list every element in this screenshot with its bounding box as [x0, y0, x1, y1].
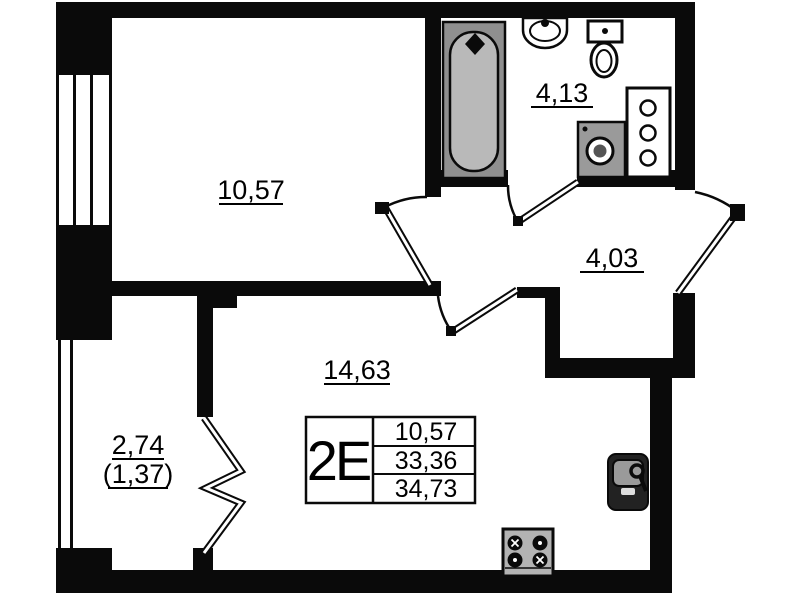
wall-left-upper: [56, 2, 112, 73]
info-floor-area: 33,36: [395, 447, 458, 475]
living-area-label: 14,63: [323, 355, 391, 385]
door-leaf-cap: [730, 204, 745, 221]
wall-top: [56, 2, 695, 18]
bedroom-window: [56, 73, 112, 227]
floor-plan-drawing: 2E 10,57 33,36 34,73 10,57 4,13 4,03 14,…: [0, 0, 799, 600]
wall-bottom: [56, 570, 672, 593]
toilet: [588, 21, 622, 77]
bathtub: [443, 22, 505, 178]
floor-plan: 2E 10,57 33,36 34,73 10,57 4,13 4,03 14,…: [0, 0, 799, 600]
washbasin: [523, 15, 567, 48]
kitchen-sink: [608, 454, 648, 510]
unit-type-label: 2E: [307, 429, 370, 492]
living-room-door: [438, 290, 517, 336]
stove: [503, 529, 553, 576]
balcony-door: [204, 418, 241, 553]
balcony-area-label: 2,74: [112, 430, 165, 460]
wall-balcony-divider-top: [197, 290, 237, 308]
cabinet-knob: [641, 126, 656, 141]
window-pane: [76, 75, 90, 225]
washing-machine-door-inner: [594, 145, 607, 158]
stove-burner-dot: [513, 558, 517, 562]
washbasin-faucet-icon: [541, 19, 549, 27]
hallway-area-label: 4,03: [586, 243, 639, 273]
wall-entry-stub: [673, 293, 695, 378]
kitchen-sink-drainer: [621, 488, 635, 495]
toilet-bowl-inner: [597, 50, 612, 72]
wall-bedroom-bathroom: [425, 18, 441, 197]
door-leaf-cap: [446, 326, 456, 336]
door-leaf-inner: [518, 182, 578, 222]
kitchen-sink-faucet-icon: [631, 465, 643, 477]
glazing-line-outer: [58, 340, 61, 550]
wall-right-upper: [675, 2, 695, 190]
stove-burner-dot: [538, 541, 542, 545]
walls: [56, 2, 695, 593]
washing-machine: [578, 122, 625, 177]
entrance-door: [678, 192, 745, 293]
washing-machine-knob: [583, 127, 588, 132]
door-swing-arc: [385, 197, 427, 207]
glazing-line-inner: [70, 340, 73, 550]
wall-balcony-stub-left: [56, 548, 112, 570]
wall-vestibule-top: [517, 287, 560, 298]
info-total-area: 34,73: [395, 475, 458, 503]
door-leaf-cap: [375, 202, 389, 214]
unit-info-table: 2E 10,57 33,36 34,73: [306, 417, 475, 503]
bathroom-door: [508, 182, 578, 226]
wall-vestibule-bottom: [545, 358, 673, 378]
bathroom-cabinet: [627, 88, 670, 177]
bathroom-area-label: 4,13: [536, 78, 589, 108]
bedroom-door: [375, 197, 430, 285]
door-leaf-inner: [452, 290, 517, 332]
bedroom-area-label: 10,57: [217, 175, 285, 205]
wall-right-lower: [650, 378, 672, 593]
balcony-coeff-label: (1,37): [103, 459, 174, 489]
wall-balcony-divider: [197, 290, 213, 417]
window-pane: [59, 75, 73, 225]
toilet-button: [602, 28, 608, 34]
info-living-area: 10,57: [395, 418, 458, 446]
wall-bedroom-bottom: [56, 281, 441, 296]
balcony-glazing: [58, 340, 73, 550]
door-leaf-inner: [385, 207, 430, 285]
door-leaf-inner: [678, 214, 736, 293]
cabinet-knob: [641, 151, 656, 166]
cabinet-knob: [641, 101, 656, 116]
window-pane: [93, 75, 109, 225]
door-leaf-cap: [513, 216, 523, 226]
stove-body: [503, 529, 553, 576]
